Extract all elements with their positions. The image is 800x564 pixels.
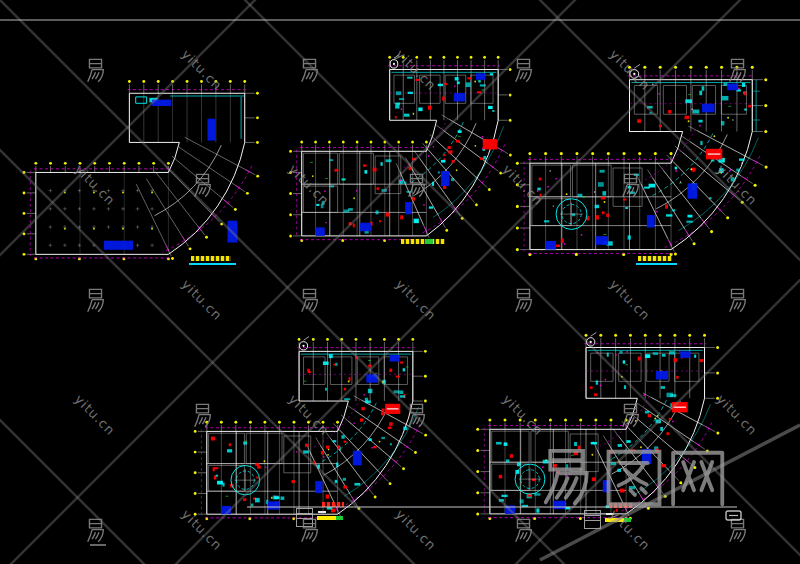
cad-sheet: yitu.cnyitu.cnyitu.cnyitu.cnyitu.cnyitu.… [0,0,800,564]
rule-lines [0,0,800,564]
